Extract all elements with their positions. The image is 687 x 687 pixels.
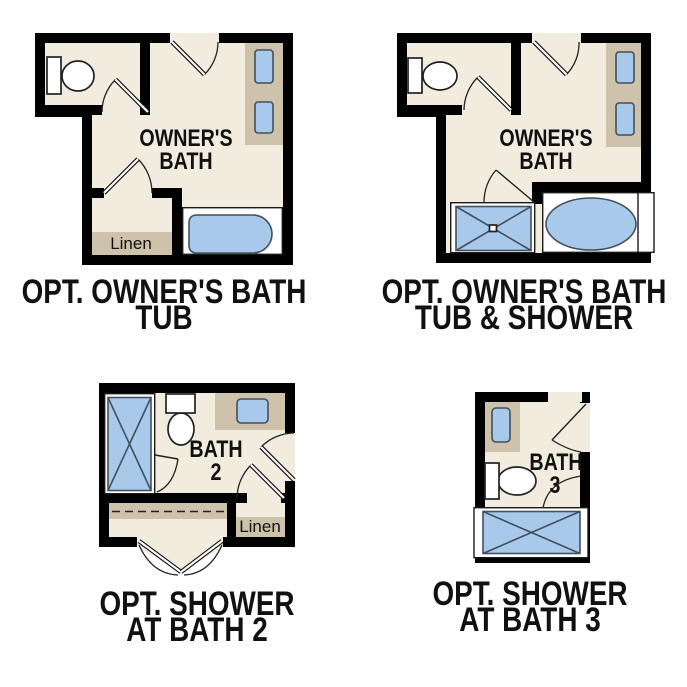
sink: [255, 50, 273, 83]
shower-drain: [490, 225, 497, 232]
entry-opening-right: [580, 403, 590, 452]
linen-wall-stub-left: [92, 188, 104, 198]
plan-shower-at-bath-3: BATH 3 OPT. SHOWER AT BATH 3: [432, 392, 627, 639]
oval-tub: [546, 198, 636, 250]
sink: [616, 52, 634, 83]
linen-tub-divider-wall: [172, 188, 182, 255]
closet-wall: [109, 493, 247, 503]
toilet-room-wall: [45, 105, 102, 115]
toilet-tank: [485, 463, 499, 499]
toilet-bowl: [62, 61, 94, 91]
entry-opening-top: [548, 392, 582, 402]
plan-shower-at-bath-2: Linen BATH 2 OPT. SHOWER AT BATH 2: [99, 383, 295, 649]
sink: [616, 103, 634, 135]
room-label-line2: 3: [550, 471, 561, 498]
toilet-room-wall: [407, 105, 462, 115]
linen-label: Linen: [110, 234, 152, 253]
plan-owners-bath-tub-shower: OWNER'S BATH OPT. OWNER'S BATH TUB & SHO…: [382, 33, 667, 337]
toilet-tank: [166, 394, 195, 413]
linen-label: Linen: [239, 517, 281, 536]
sink: [492, 408, 510, 442]
sink: [255, 102, 273, 133]
floor-plan-figure: Linen OWNER'S BATH OPT. OWNER'S BATH TUB: [0, 0, 687, 687]
room-label-line2: BATH: [519, 147, 572, 174]
entry-opening: [532, 33, 581, 43]
room-label-line2: BATH: [159, 147, 212, 174]
closet-opening-bottom: [137, 537, 223, 547]
floor-plan-canvas: Linen OWNER'S BATH OPT. OWNER'S BATH TUB: [0, 0, 687, 687]
toilet-tank: [47, 57, 61, 94]
linen-wall-left: [227, 493, 236, 547]
plan-title-line2: TUB & SHOWER: [415, 298, 633, 336]
plan-owners-bath-tub: Linen OWNER'S BATH OPT. OWNER'S BATH TUB: [22, 33, 307, 337]
sink: [237, 399, 268, 423]
room-label-line2: 2: [211, 458, 222, 485]
plan-title-line2: AT BATH 3: [459, 600, 600, 638]
tub-wall: [542, 182, 641, 192]
toilet-tank: [408, 58, 422, 93]
plan-title-line2: TUB: [135, 298, 192, 336]
toilet-room-wall-right: [511, 43, 521, 115]
entry-opening: [170, 33, 219, 43]
plan-title-line2: AT BATH 2: [126, 610, 267, 648]
toilet-bowl: [423, 62, 457, 90]
tub-deck-notch: [638, 193, 654, 253]
bathtub: [189, 215, 272, 253]
